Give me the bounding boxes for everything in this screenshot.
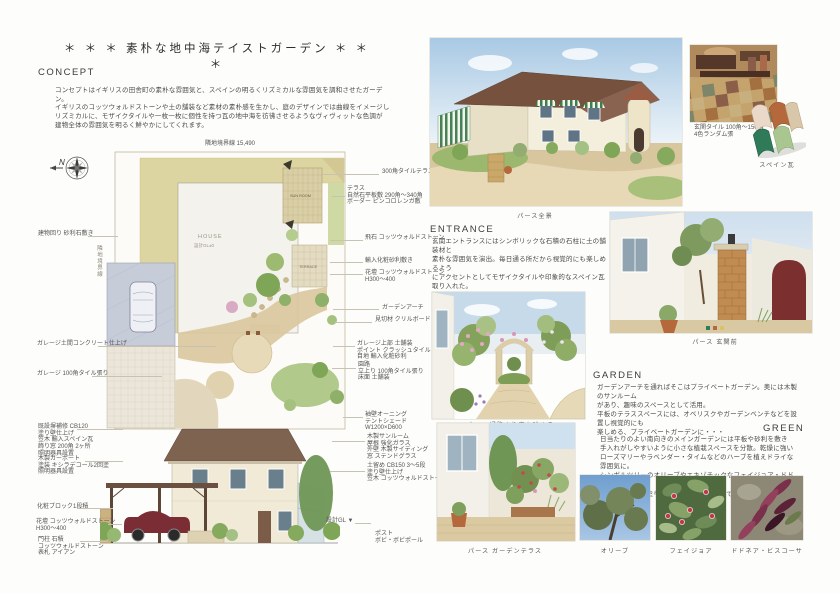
terrace-label: TERRACE xyxy=(299,265,318,269)
compass-icon: N xyxy=(48,148,92,188)
presentation-board: ＊ ＊ ＊ 素朴な地中海テイストガーデン ＊ ＊ ＊ CONCEPT コンセプト… xyxy=(0,0,840,594)
elev-annotation-carport: 木製カーポート 塗装 キシラデコール2回塗 照明器具設置 xyxy=(38,456,109,476)
caption-dodonaea: ドドネア・ビスコーサ xyxy=(731,546,803,555)
elev-annotation-flowerbed: 花壇 コッツウォルドストーン H300〜400 xyxy=(36,519,115,532)
plan-annotation-tile-terrace: 300角タイルテラス xyxy=(382,169,434,176)
page-title: ＊ ＊ ＊ 素朴な地中海テイストガーデン ＊ ＊ ＊ xyxy=(57,40,377,72)
plan-annotation-garage-upper: ガレージ上部 土舗装 ポイント クラッシュタイル 目地 輸入化粧砂利 xyxy=(357,341,431,361)
concept-paragraph-1: コンセプトはイギリスの田舎町の素朴な雰囲気と、スペインの明るくリズミカルな雰囲気… xyxy=(55,86,395,104)
north-label: N xyxy=(59,158,65,167)
caption-feijoa: フェイジョア xyxy=(656,546,726,555)
caption-spain-tile: スペイン瓦 xyxy=(748,160,806,169)
plan-annotation-imported-gravel: 輸入化粧砂利敷き xyxy=(365,258,413,265)
plan-boundary-top-label: 隣地境界線 15,490 xyxy=(205,141,255,148)
house-label: HOUSE xyxy=(198,234,223,240)
sunroom-area: SUN ROOM xyxy=(283,160,322,229)
caption-entrance-view: パース 玄関前 xyxy=(660,337,770,346)
caption-olive: オリーブ xyxy=(580,546,650,555)
render-path-view xyxy=(432,292,585,419)
sunroom-label: SUN ROOM xyxy=(290,194,311,198)
site-plan-drawing: HOUSE 設計GL±0 SUN ROOM TERRACE xyxy=(100,150,348,432)
plan-annotation-garden-path: 園路 立上り 100角タイル張り 床面 土舗装 xyxy=(358,362,424,382)
render-main-view xyxy=(430,38,682,206)
elev-annotation-awning: 袖壁オーニング テントシェード W1200×D600 xyxy=(365,412,407,432)
plan-garage xyxy=(107,263,175,346)
photo-dodonaea xyxy=(731,476,803,540)
caption-terrace-view: パース ガーデンテラス xyxy=(445,546,565,555)
plan-annotation-gravel: 建物回り 砂利石敷き xyxy=(38,231,94,238)
terrace-area: TERRACE xyxy=(292,245,327,287)
plan-annotation-garden-arch: ガーデンアーチ xyxy=(382,305,424,312)
caption-main-view: パース全景 xyxy=(495,211,575,220)
entrance-heading: ENTRANCE xyxy=(430,224,494,235)
elev-gl-label: 設計GL ▼ xyxy=(326,518,353,525)
entrance-paragraph: 玄関エントランスにはシンボリックな石積の石柱に土の舗装材と 素朴な雰囲気を演出。… xyxy=(432,237,607,292)
elevation-drawing xyxy=(100,413,340,553)
plan-annotation-edging: 見切材 クリルボード xyxy=(375,317,431,324)
elev-post-label: ポスト ボビ・ボビポール xyxy=(375,531,423,544)
photo-spain-tile xyxy=(748,95,806,158)
house-gl-label: 設計GL±0 xyxy=(194,242,214,249)
concept-paragraph-2: イギリスのコッツウォルドストーンや土の舗装など素材の素朴感を生かし、庭のデザイン… xyxy=(55,103,400,130)
green-heading: GREEN xyxy=(763,423,804,434)
render-entrance-view xyxy=(610,212,812,333)
plan-annotation-terrace: テラス 自然石平板敷 290角〜340角 ボーダー ピンコロレンガ敷 xyxy=(347,186,423,206)
garden-heading: GARDEN xyxy=(593,370,643,381)
photo-feijoa xyxy=(656,476,726,540)
photo-olive xyxy=(580,475,650,540)
concept-heading: CONCEPT xyxy=(38,67,95,78)
render-terrace-view xyxy=(437,423,575,541)
elev-annotation-sunroom: 木製サンルーム 屋根 強化ガラス 外壁 木製サイディング 窓 ステンドグラス xyxy=(367,434,428,461)
